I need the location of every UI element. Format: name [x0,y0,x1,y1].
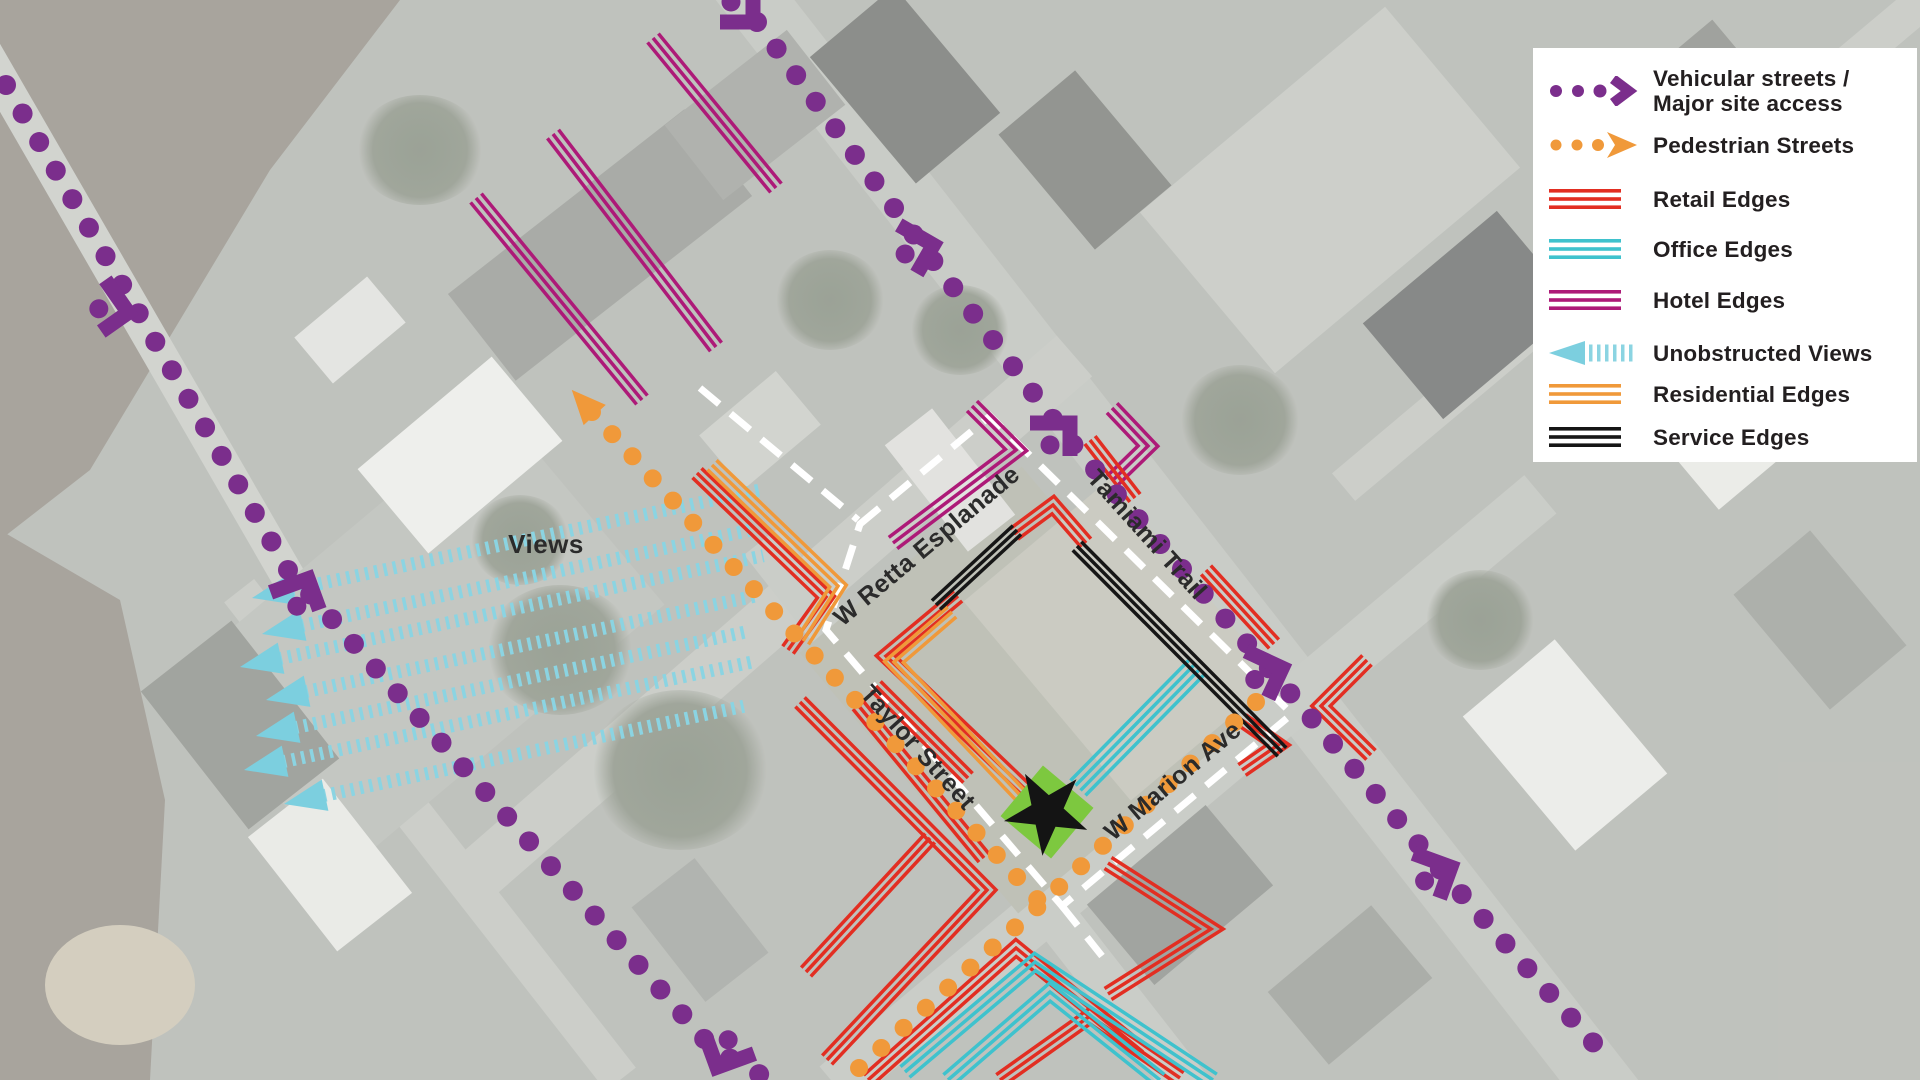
legend-label: Service Edges [1653,425,1809,450]
pedestrian-route-dot [644,469,662,487]
legend-item-service: Service Edges [1547,422,1907,452]
vehicular-route-dot [0,75,16,95]
legend-item-office: Office Edges [1547,234,1907,264]
vehicular-route-dot [607,930,627,950]
retail-edge [806,838,930,972]
pedestrian-route-dot [1008,868,1026,886]
vehicular-route-dot [672,1004,692,1024]
vehicular-route-dot [519,831,539,851]
legend-label: Residential Edges [1653,382,1850,407]
pedestrian-route-dot [872,1039,890,1057]
vehicular-route-dot [29,132,49,152]
pedestrian-route-dot [1050,878,1068,896]
vehicular-route-dot [344,634,364,654]
site-analysis-map: W Retta EsplanadeTamiami TrailTaylor Str… [0,0,1920,1080]
vehicular-route-dot [884,198,904,218]
vehicular-route-dot [1387,809,1407,829]
pedestrian-route-dot [939,979,957,997]
vehicular-route-dot [806,92,826,112]
retail-edge [1206,570,1274,644]
vehicular-route-dot [963,304,983,324]
vehicular-route-dot [864,171,884,191]
vehicular-route-dot [453,757,473,777]
residential-edge-icon [1547,379,1639,409]
vehicular-route-dot [178,389,198,409]
vehicular-turn-marker [1232,651,1282,698]
vehicular-route-dot [983,330,1003,350]
vehicular-route-dot [1344,759,1364,779]
street-label: Views [508,529,584,559]
vehicular-route-dot [1517,958,1537,978]
pedestrian-route-dot [984,938,1002,956]
hotel-edge [471,202,637,404]
retail-edge-icon [1547,184,1639,214]
service-edge [940,534,1021,609]
vehicular-route-dot [388,683,408,703]
vehicular-route-dot [366,659,386,679]
vehicular-route-dot [650,980,670,1000]
vehicular-turn-marker [706,1023,755,1068]
vehicular-route-dot [585,905,605,925]
legend-item-pedestrian: Pedestrian Streets [1547,130,1907,160]
vehicular-route-dot [1323,734,1343,754]
view-arrowhead [284,780,328,811]
vehicular-turn-marker [882,225,933,274]
pedestrian-route-dot [664,492,682,510]
office-edge [900,953,1216,1074]
vehicular-route-dot [245,503,265,523]
vehicular-route-dot [1280,683,1300,703]
legend-label: Pedestrian Streets [1653,133,1854,158]
vehicular-route-dot [563,881,583,901]
pedestrian-route-dot [806,647,824,665]
vehicular-route-dot [825,118,845,138]
pedestrian-route-dot [1028,898,1046,916]
vehicular-route-dot [1495,934,1515,954]
vehicular-route-dot [1452,884,1472,904]
retail-edge [801,834,925,968]
pedestrian-route-dot [1006,918,1024,936]
street-label: Tamiami Trail [1082,464,1213,605]
retail-edge [1014,505,1086,543]
pedestrian-route-dot [725,558,743,576]
office-edge [1071,661,1189,781]
pedestrian-route-dot [917,999,935,1017]
retail-edge [1104,868,1198,988]
view-line [313,706,743,797]
legend-label: Unobstructed Views [1653,341,1872,366]
legend-label: Office Edges [1653,237,1793,262]
view-arrowhead [256,712,300,743]
legend-label: Hotel Edges [1653,288,1785,313]
legend-item-vehicular: Vehicular streets / Major site access [1547,66,1907,116]
hotel-edge-icon [1547,285,1639,315]
pedestrian-route-dot [684,514,702,532]
pedestrian-route-dot [826,669,844,687]
pedestrian-route-dot [895,1019,913,1037]
vehicular-route-dot [431,733,451,753]
pedestrian-route-dot [1094,837,1112,855]
hotel-edge [547,138,710,351]
vehicular-route-dot [629,955,649,975]
vehicular-route-dot [1561,1008,1581,1028]
pedestrian-route-dot [745,580,763,598]
service-edge-icon [1547,422,1639,452]
pedestrian-route-dot [1247,693,1265,711]
vehicular-route-dot [46,161,66,181]
vehicular-route-dot [1366,784,1386,804]
pedestrian-route-dot [968,824,986,842]
vehicular-route-dot [62,189,82,209]
street-label: Taylor Street [855,680,981,816]
vehicular-route-dot [1302,708,1322,728]
view-arrowhead [266,676,310,707]
vehicular-route-dot [786,65,806,85]
site-boundary-dashed [1062,906,1102,956]
vehicular-route-dot [79,218,99,238]
vehicular-route-dot [1215,609,1235,629]
pedestrian-arrowhead [572,390,606,425]
hotel-edge [559,130,722,343]
vehicular-route-dot [1539,983,1559,1003]
pedestrian-route-dot [850,1059,868,1077]
vehicular-route-dot [475,782,495,802]
office-edge-icon [1547,234,1639,264]
pedestrian-route-dot [961,959,979,977]
pedestrian-route-dot [1072,857,1090,875]
vehicular-route-dot [145,332,165,352]
vehicular-route-dot [195,417,215,437]
vehicular-route-dot [410,708,430,728]
hotel-edge [648,42,771,192]
view-arrowhead [244,746,288,777]
legend-item-hotel: Hotel Edges [1547,285,1907,315]
vehicular-turn-marker [1030,423,1070,456]
vehicular-route-dot [96,246,116,266]
view-arrowhead [240,643,284,674]
view-line [269,556,763,661]
vehicular-route-dot [767,39,787,59]
pedestrian-route-dot [988,846,1006,864]
pedestrian-route-dot [704,536,722,554]
vehicular-route-dot [162,360,182,380]
legend-item-residential: Residential Edges [1547,379,1907,409]
vehicular-turn-marker [1402,853,1451,898]
unobstructed-views-icon [1547,338,1639,368]
hotel-edge [658,34,781,184]
legend-label: Retail Edges [1653,187,1790,212]
hotel-edge [653,38,776,188]
pedestrian-route-dot [785,624,803,642]
pedestrian-route-dot [765,602,783,620]
vehicular-route-dot [13,104,33,124]
retail-edge [1111,858,1223,1000]
street-label: W Marion Ave [1099,716,1247,846]
vehicular-route-dot [749,1064,769,1080]
vehicular-route-icon [1547,76,1639,106]
vehicular-route-dot [322,609,342,629]
vehicular-route-dot [228,474,248,494]
vehicular-route-dot [1474,909,1494,929]
retail-edge [872,957,1139,1080]
vehicular-route-dot [1023,383,1043,403]
hotel-edge [553,134,716,347]
vehicular-route-dot [497,807,517,827]
vehicular-route-dot [212,446,232,466]
vehicular-route-dot [1583,1032,1603,1052]
pedestrian-route-dot [603,425,621,443]
vehicular-route-dot [261,531,281,551]
vehicular-route-dot [845,145,865,165]
legend-item-retail: Retail Edges [1547,184,1907,214]
pedestrian-route-icon [1547,130,1639,160]
pedestrian-route-dot [623,447,641,465]
vehicular-turn-marker [720,0,753,22]
view-line [273,662,752,764]
legend-label: Vehicular streets / Major site access [1653,66,1907,116]
vehicular-route-dot [943,277,963,297]
street-label: W Retta Esplanade [828,460,1025,632]
retail-edge [1211,566,1279,640]
map-legend: Vehicular streets / Major site access Pe… [1533,48,1917,462]
vehicular-route-dot [1003,356,1023,376]
vehicular-route-dot [541,856,561,876]
legend-item-views: Unobstructed Views [1547,338,1907,368]
